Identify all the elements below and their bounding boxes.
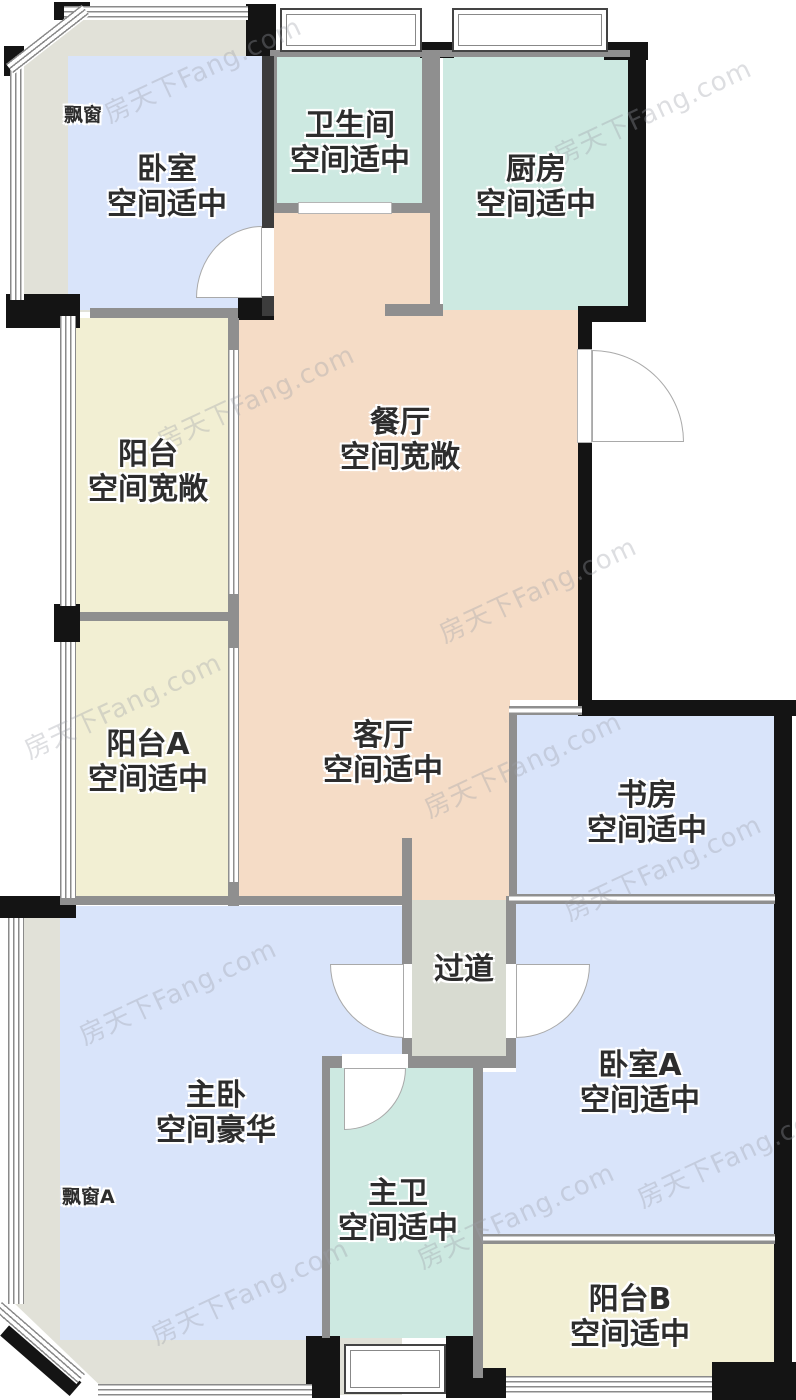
wall-entry-top: [578, 306, 646, 322]
wall-study-left: [509, 706, 517, 898]
wall-balcony-divider-block: [54, 604, 80, 642]
label-living: 客厅 空间适中: [263, 718, 503, 788]
wall-right-outer: [774, 714, 792, 1372]
wall-entry-above-door: [578, 322, 592, 350]
wall-bottomright-corner: [712, 1362, 796, 1400]
wall-bedroom-right-lower: [262, 296, 274, 316]
label-bedroom-a: 卧室A 空间适中: [520, 1048, 760, 1118]
entry-door-leaf: [577, 349, 592, 443]
room-note: 空间适中: [48, 762, 248, 797]
window-bedroom-top: [64, 6, 248, 20]
room-name: 卧室A: [520, 1048, 760, 1083]
window-master-bottom: [98, 1384, 312, 1398]
window-balconyb-bottom: [506, 1376, 712, 1394]
room-note: 空间适中: [436, 187, 636, 222]
window-masterbath-bottom: [344, 1344, 446, 1394]
window-bedrooma-balconyb: [483, 1234, 775, 1244]
room-note: 空间适中: [510, 1317, 750, 1352]
room-name: 主卧: [96, 1078, 336, 1113]
room-note: 空间适中: [250, 143, 450, 178]
window-bathroom-sliding: [298, 202, 392, 214]
room-name: 阳台A: [48, 727, 248, 762]
wall-balcony-divider: [80, 612, 230, 621]
room-note: 空间适中: [527, 813, 767, 848]
room-note: 空间豪华: [96, 1113, 336, 1148]
door-arc-entry: [592, 350, 684, 442]
label-master-bath: 主卫 空间适中: [298, 1176, 498, 1246]
label-bathroom: 卫生间 空间适中: [250, 108, 450, 178]
room-name: 卫生间: [250, 108, 450, 143]
label-bay-window: 飘窗: [64, 104, 164, 126]
floorplan-canvas: 房天下Fang.com 房天下Fang.com 房天下Fang.com 房天下F…: [0, 0, 796, 1400]
room-name: 厨房: [436, 152, 636, 187]
room-note: 空间宽敞: [280, 440, 520, 475]
wall-kitchen-bottom-stub: [385, 304, 443, 316]
room-name: 主卫: [298, 1176, 498, 1211]
wall-balcony-top: [90, 308, 238, 318]
room-name: 飘窗A: [62, 1186, 182, 1208]
room-name: 阳台: [48, 437, 248, 472]
wall-hall-left-upper: [402, 838, 412, 964]
label-balcony-b: 阳台B 空间适中: [510, 1282, 750, 1352]
window-master-left: [8, 918, 24, 1304]
door-gap-masterbath: [342, 1054, 408, 1068]
label-bay-window-a: 飘窗A: [62, 1186, 182, 1208]
label-dining: 餐厅 空间宽敞: [280, 405, 520, 475]
wall-master-top: [60, 896, 404, 905]
wall-study-topleft-thin: [509, 706, 582, 715]
room-name: 客厅: [263, 718, 503, 753]
label-master-bedroom: 主卧 空间豪华: [96, 1078, 336, 1148]
label-hallway: 过道: [404, 952, 524, 987]
room-name: 过道: [404, 952, 524, 987]
label-balcony-a: 阳台A 空间适中: [48, 727, 248, 797]
room-note: 空间适中: [263, 753, 503, 788]
label-kitchen: 厨房 空间适中: [436, 152, 636, 222]
room-note: 空间适中: [520, 1083, 760, 1118]
label-balcony: 阳台 空间宽敞: [48, 437, 248, 507]
room-note: 空间适中: [47, 187, 287, 222]
room-note: 空间适中: [298, 1211, 498, 1246]
room-name: 阳台B: [510, 1282, 750, 1317]
room-name: 餐厅: [280, 405, 520, 440]
door-gap-bedroom: [262, 228, 274, 296]
room-name: 书房: [527, 778, 767, 813]
room-name: 飘窗: [64, 104, 164, 126]
window-bedroom-left: [10, 62, 24, 300]
label-study: 书房 空间适中: [527, 778, 767, 848]
room-note: 空间宽敞: [48, 472, 248, 507]
window-kitchen-top: [452, 8, 608, 52]
